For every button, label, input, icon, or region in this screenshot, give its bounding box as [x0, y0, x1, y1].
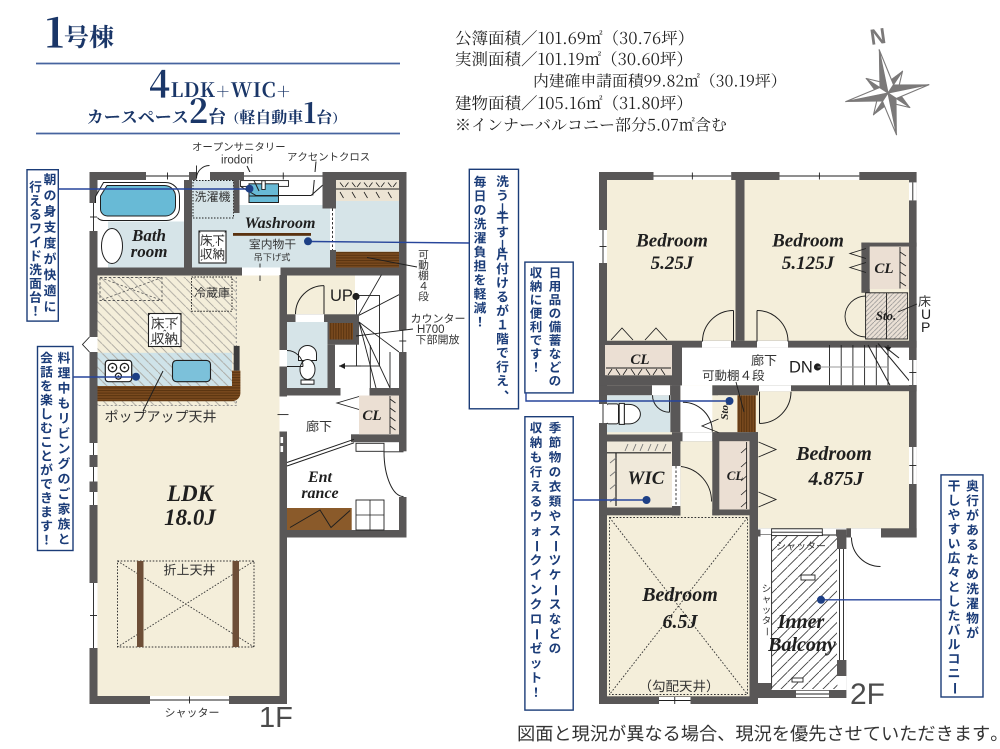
svg-text:room: room: [131, 242, 168, 261]
svg-text:Sto.: Sto.: [876, 308, 897, 323]
svg-text:CL: CL: [874, 261, 893, 277]
svg-text:18.0J: 18.0J: [164, 505, 217, 530]
svg-text:Bedroom: Bedroom: [641, 584, 718, 606]
svg-text:Inner: Inner: [777, 611, 825, 633]
svg-text:1F: 1F: [259, 702, 293, 734]
svg-text:Washroom: Washroom: [245, 215, 316, 232]
svg-text:rance: rance: [301, 485, 338, 502]
svg-text:UP: UP: [330, 287, 353, 305]
svg-text:Bedroom: Bedroom: [795, 443, 872, 465]
svg-text:LDK: LDK: [166, 481, 215, 506]
svg-text:5.125J: 5.125J: [782, 253, 835, 274]
svg-text:4.875J: 4.875J: [808, 468, 865, 490]
svg-text:CL: CL: [630, 352, 649, 368]
svg-text:2F: 2F: [850, 678, 885, 711]
svg-text:Ent: Ent: [307, 469, 333, 486]
svg-text:Bedroom: Bedroom: [635, 231, 708, 252]
svg-text:P: P: [921, 319, 930, 335]
svg-text:6.5J: 6.5J: [663, 611, 699, 633]
svg-text:Balcony: Balcony: [767, 634, 836, 656]
svg-text:H700: H700: [417, 324, 445, 336]
svg-text:DN: DN: [789, 359, 813, 377]
svg-text:WIC: WIC: [628, 468, 665, 489]
svg-text:CL: CL: [362, 408, 381, 424]
svg-text:CL: CL: [727, 468, 744, 483]
svg-text:Bedroom: Bedroom: [771, 231, 844, 252]
svg-text:irodori: irodori: [221, 155, 253, 167]
svg-text:5.25J: 5.25J: [651, 253, 694, 274]
